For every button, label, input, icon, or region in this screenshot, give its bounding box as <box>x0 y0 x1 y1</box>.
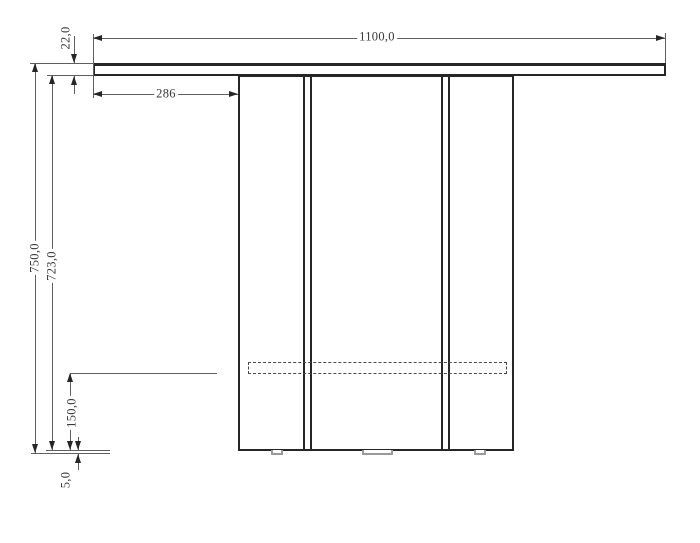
dimension-arrow <box>93 35 102 41</box>
dimension-arrow <box>32 63 38 72</box>
partition-line <box>441 77 443 450</box>
foot-glide <box>474 450 486 455</box>
dimension-arrow <box>32 444 38 453</box>
extension-line <box>30 63 93 64</box>
dimension-arrow <box>67 441 73 450</box>
dimension-arrow <box>229 91 238 97</box>
foot-glide <box>271 450 283 455</box>
hidden-rail-dashed <box>248 362 507 374</box>
partition-line <box>303 77 305 450</box>
foot-glide <box>362 450 393 455</box>
dim-label-height-rail: 150,0 <box>65 396 78 430</box>
partition-line <box>448 77 450 450</box>
dimension-arrow <box>49 75 55 84</box>
extension-line <box>31 453 110 454</box>
dimension-arrow <box>75 441 81 450</box>
dim-label-height-total: 750,0 <box>28 241 41 275</box>
dimension-arrow <box>656 35 665 41</box>
extension-line <box>665 33 666 63</box>
dim-label-width-top: 1100,0 <box>357 30 397 43</box>
technical-drawing-canvas: 1100,0 286 22,0 750,0 723,0 150,0 5,0 <box>0 0 700 543</box>
partition-line <box>310 77 312 450</box>
extension-line <box>93 34 94 98</box>
cabinet-body-outline <box>238 75 514 451</box>
dimension-arrow <box>93 91 102 97</box>
dimension-arrow <box>49 441 55 450</box>
dim-label-thickness-top: 22,0 <box>59 24 72 51</box>
dimension-arrow <box>75 454 81 463</box>
dim-label-overhang-left: 286 <box>154 87 178 100</box>
extension-line <box>70 373 217 374</box>
dimension-arrow <box>71 76 77 85</box>
extension-line <box>46 450 110 451</box>
dim-label-height-foot: 5,0 <box>59 470 72 491</box>
dimension-arrow <box>67 373 73 382</box>
dimension-arrow <box>71 54 77 63</box>
dim-label-height-body: 723,0 <box>45 249 58 283</box>
